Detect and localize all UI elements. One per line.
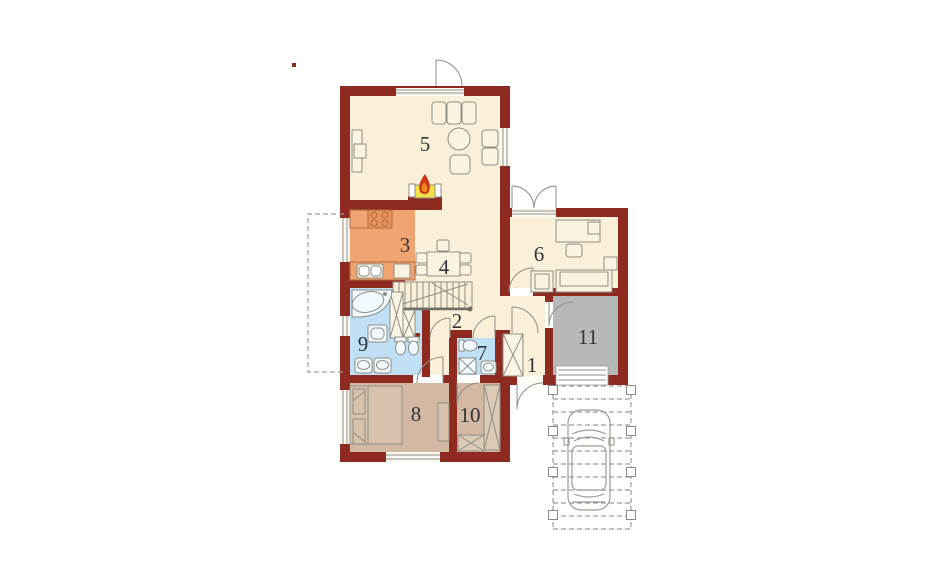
door-swing-icon bbox=[517, 383, 543, 409]
desk-icon bbox=[556, 220, 600, 242]
room-11-label: 11 bbox=[578, 325, 598, 349]
wardrobe-icon bbox=[503, 334, 523, 376]
terrace-door-glazing bbox=[396, 88, 464, 96]
washer-icon bbox=[368, 325, 387, 342]
window-icon bbox=[500, 128, 510, 166]
floor-plan-canvas: 1 2 3 4 5 6 7 8 9 10 11 bbox=[0, 0, 940, 587]
door-swing-icon bbox=[436, 60, 462, 86]
carport-pergola bbox=[549, 386, 636, 530]
office-chair-icon bbox=[566, 244, 582, 257]
worktop-appliance bbox=[394, 264, 410, 278]
door-swing-icon bbox=[512, 186, 556, 208]
window-icon bbox=[340, 218, 350, 262]
armchair-icon bbox=[531, 271, 553, 292]
shower-icon bbox=[459, 358, 476, 374]
terrace-outline bbox=[308, 214, 344, 372]
french-door-glazing bbox=[512, 208, 556, 217]
round-table-icon bbox=[448, 128, 470, 150]
toilet-icon bbox=[459, 340, 477, 351]
room-2-label: 2 bbox=[452, 309, 463, 333]
side-table-icon bbox=[604, 257, 617, 270]
room-1-label: 1 bbox=[527, 353, 538, 377]
shelf-icon bbox=[438, 403, 449, 441]
room-4-label: 4 bbox=[439, 255, 450, 279]
chair-icon bbox=[450, 155, 470, 174]
double-bed-icon bbox=[350, 386, 402, 444]
room-10-label: 10 bbox=[460, 403, 481, 427]
room-7-label: 7 bbox=[477, 341, 488, 365]
room-5-label: 5 bbox=[420, 132, 431, 156]
room-8-label: 8 bbox=[411, 402, 422, 426]
room-9-label: 9 bbox=[358, 332, 369, 356]
sofa-icon bbox=[556, 270, 612, 292]
wardrobe-icon bbox=[458, 435, 484, 451]
garage-door-icon bbox=[556, 366, 608, 385]
room-3-label: 3 bbox=[400, 233, 411, 257]
room-6-label: 6 bbox=[534, 242, 545, 266]
window-icon bbox=[386, 452, 440, 462]
window-icon bbox=[340, 316, 350, 336]
floor-plan: 1 2 3 4 5 6 7 8 9 10 11 bbox=[0, 0, 940, 587]
stove-icon bbox=[368, 210, 392, 228]
kitchen-sink-icon bbox=[357, 264, 383, 278]
carport-post-icon bbox=[549, 386, 636, 520]
stray-mark bbox=[292, 63, 296, 67]
sofa-icon bbox=[432, 102, 476, 124]
wardrobe-icon bbox=[484, 385, 500, 450]
window-icon bbox=[340, 390, 350, 444]
